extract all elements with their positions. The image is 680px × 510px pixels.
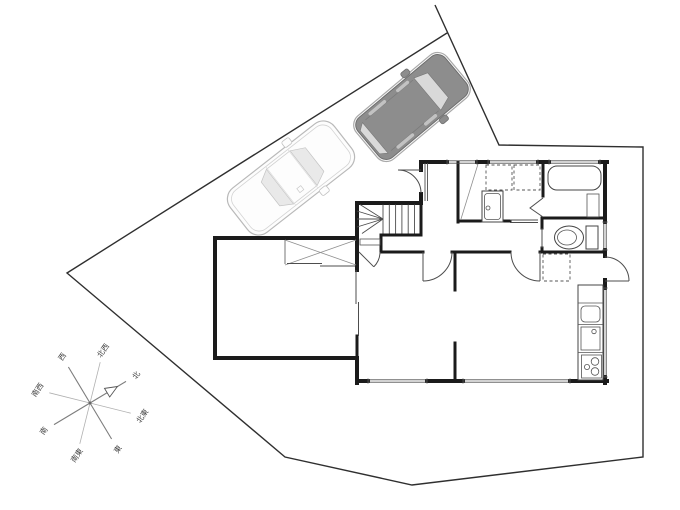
bath-counter	[587, 194, 599, 217]
interior-walls	[357, 162, 605, 381]
staircase	[357, 205, 415, 234]
vanity-counter	[482, 191, 503, 222]
compass-ray-northeast	[90, 403, 131, 413]
bathroom	[530, 166, 601, 217]
gray-suv	[346, 44, 479, 170]
toilet-room	[542, 226, 598, 249]
genkan-hall-ldk-door-swing	[423, 252, 452, 281]
north-arrow-icon	[105, 387, 118, 398]
floor-plan-drawing: 北 北東 東 南東 南 南西 西 北西	[0, 0, 680, 510]
compass-ray-west	[68, 367, 90, 403]
sedan-body	[222, 115, 360, 240]
bathtub-icon	[548, 166, 601, 190]
compass-label-northwest: 北西	[95, 341, 111, 359]
toilet-tank	[586, 226, 598, 249]
front-door-arc	[398, 170, 421, 193]
genkan-door-arc	[374, 252, 380, 267]
entrance-step	[425, 163, 428, 201]
toilet-bowl	[555, 226, 584, 249]
closet-x-icon	[285, 240, 356, 265]
closet-sliding-doors	[287, 264, 355, 267]
compass-ray-east	[90, 403, 112, 439]
compass-label-east: 東	[111, 443, 124, 455]
kitchen-counter	[578, 285, 603, 380]
hall-ldk-door-swing	[511, 252, 540, 281]
back-door-arc	[605, 257, 629, 281]
genkan-door-leaf	[359, 252, 374, 267]
compass-label-north: 北	[130, 369, 142, 381]
tatami-sliding-door	[356, 270, 359, 336]
compass-label-south: 南	[37, 424, 50, 436]
appliance-space-dashed	[514, 165, 540, 190]
washing-machine-space-dashed	[486, 165, 512, 190]
stair-treads	[357, 205, 415, 234]
suv-body	[352, 50, 473, 163]
front-door-swing	[398, 170, 421, 193]
compass-ray-northwest	[90, 362, 100, 403]
compass-rose: 北 北東 東 南東 南 南西 西 北西	[29, 341, 151, 464]
understair-diagonal	[461, 164, 478, 219]
compass-ray-south	[54, 403, 90, 425]
compass-label-northeast: 北東	[134, 406, 151, 424]
ldk-door-arc	[423, 252, 452, 281]
compass-center-dot	[89, 402, 92, 405]
compass-ray-southwest	[49, 393, 90, 403]
compass-label-southwest: 南西	[29, 380, 46, 398]
genkan-step	[360, 239, 380, 245]
washroom-sliding-door	[510, 220, 538, 223]
refrigerator-space-dashed	[543, 254, 570, 281]
kitchen-back-door-swing	[605, 257, 629, 281]
compass-label-west: 西	[56, 351, 68, 363]
compass-label-southeast: 南東	[68, 446, 85, 464]
bathroom-folding-door-icon	[530, 198, 543, 217]
genkan-ldk-door-swing	[359, 252, 380, 267]
hall-door-arc	[511, 252, 540, 281]
site-plan-page: 北 北東 東 南東 南 南西 西 北西	[0, 0, 680, 510]
compass-ray-southeast	[80, 403, 90, 444]
vanity-sink-icon	[482, 191, 503, 222]
closet	[285, 240, 356, 266]
